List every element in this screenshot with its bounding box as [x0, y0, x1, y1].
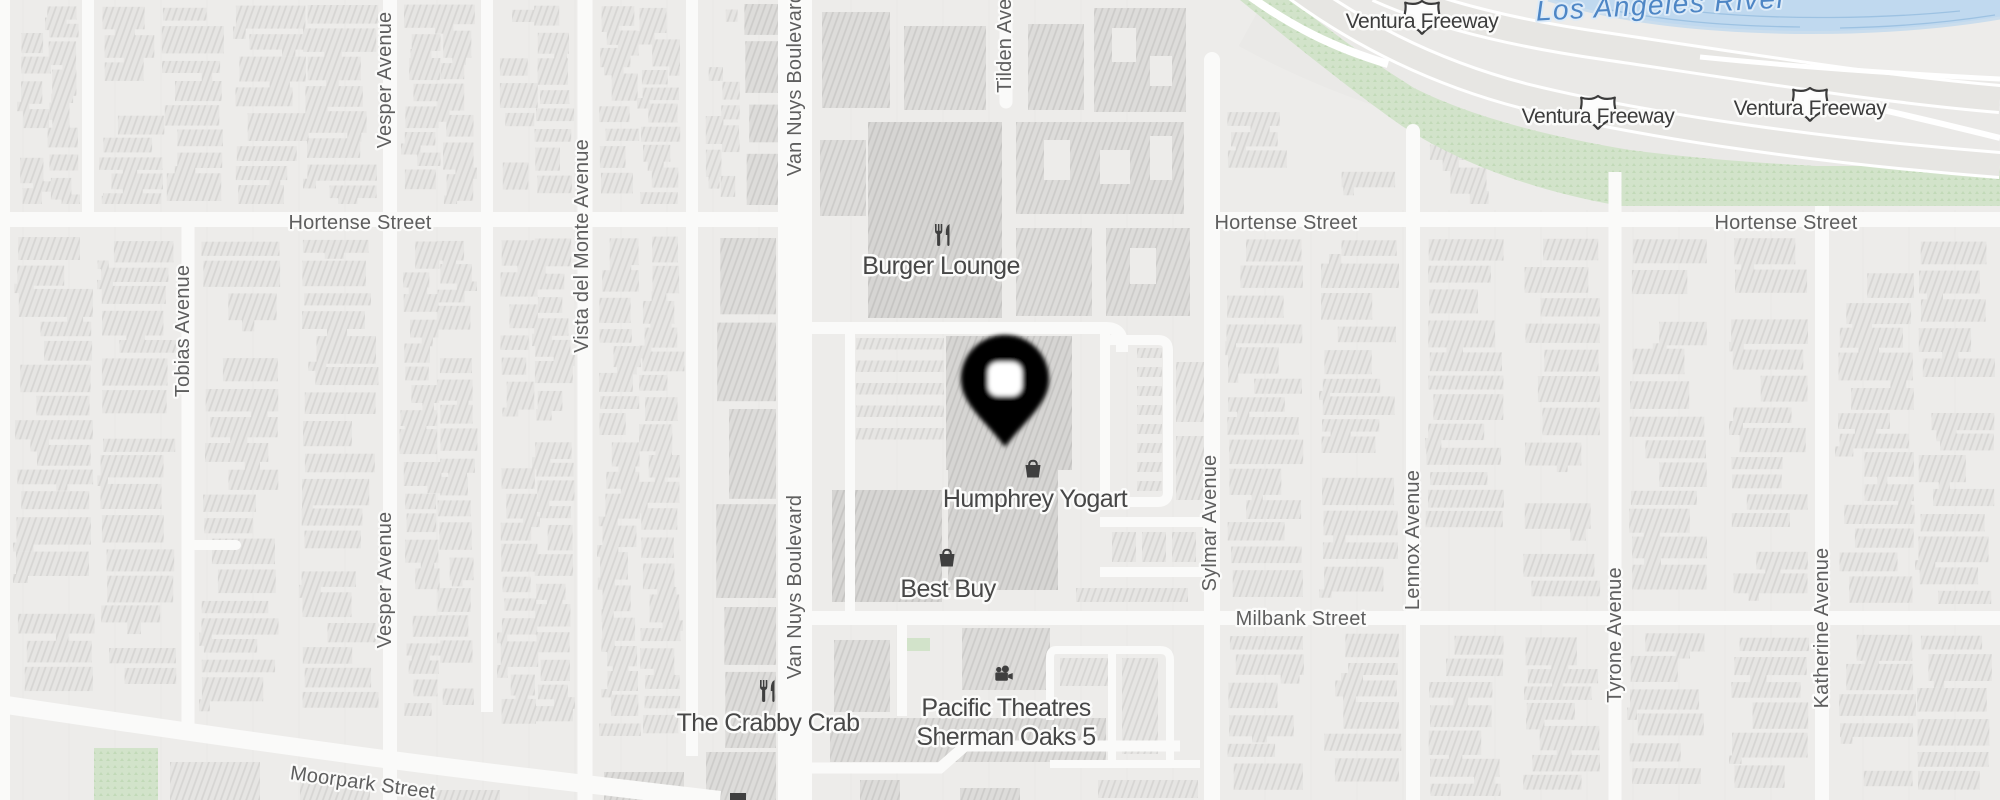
- svg-text:Vesper Avenue: Vesper Avenue: [374, 512, 396, 649]
- svg-text:Katherine Avenue: Katherine Avenue: [1811, 548, 1833, 709]
- svg-text:Vesper Avenue: Vesper Avenue: [374, 12, 396, 149]
- svg-text:Milbank Street: Milbank Street: [1236, 608, 1367, 630]
- svg-text:Ventura Freeway: Ventura Freeway: [1346, 10, 1500, 33]
- svg-text:Hortense Street: Hortense Street: [1214, 212, 1357, 234]
- svg-text:Sherman Oaks 5: Sherman Oaks 5: [916, 723, 1095, 751]
- svg-text:Tilden Aven: Tilden Aven: [994, 0, 1016, 93]
- svg-text:Pacific Theatres: Pacific Theatres: [921, 694, 1090, 722]
- svg-text:The Crabby Crab: The Crabby Crab: [677, 709, 860, 737]
- svg-text:Lennox Avenue: Lennox Avenue: [1402, 470, 1424, 610]
- svg-text:Humphrey Yogart: Humphrey Yogart: [943, 485, 1128, 513]
- svg-text:Van Nuys Boulevard: Van Nuys Boulevard: [784, 495, 806, 679]
- svg-text:Ventura Freeway: Ventura Freeway: [1734, 97, 1888, 120]
- svg-text:Burger Lounge: Burger Lounge: [862, 252, 1020, 280]
- svg-text:Sylmar Avenue: Sylmar Avenue: [1199, 455, 1221, 592]
- svg-text:Best Buy: Best Buy: [900, 575, 996, 603]
- svg-text:Van Nuys Boulevard: Van Nuys Boulevard: [784, 0, 806, 176]
- svg-text:Tyrone Avenue: Tyrone Avenue: [1604, 567, 1626, 703]
- svg-text:Vista del Monte Avenue: Vista del Monte Avenue: [571, 139, 593, 353]
- svg-text:Hortense Street: Hortense Street: [288, 212, 431, 234]
- svg-text:Hortense Street: Hortense Street: [1714, 212, 1857, 234]
- svg-text:Tobias Avenue: Tobias Avenue: [172, 265, 194, 397]
- svg-text:Ventura Freeway: Ventura Freeway: [1522, 105, 1676, 128]
